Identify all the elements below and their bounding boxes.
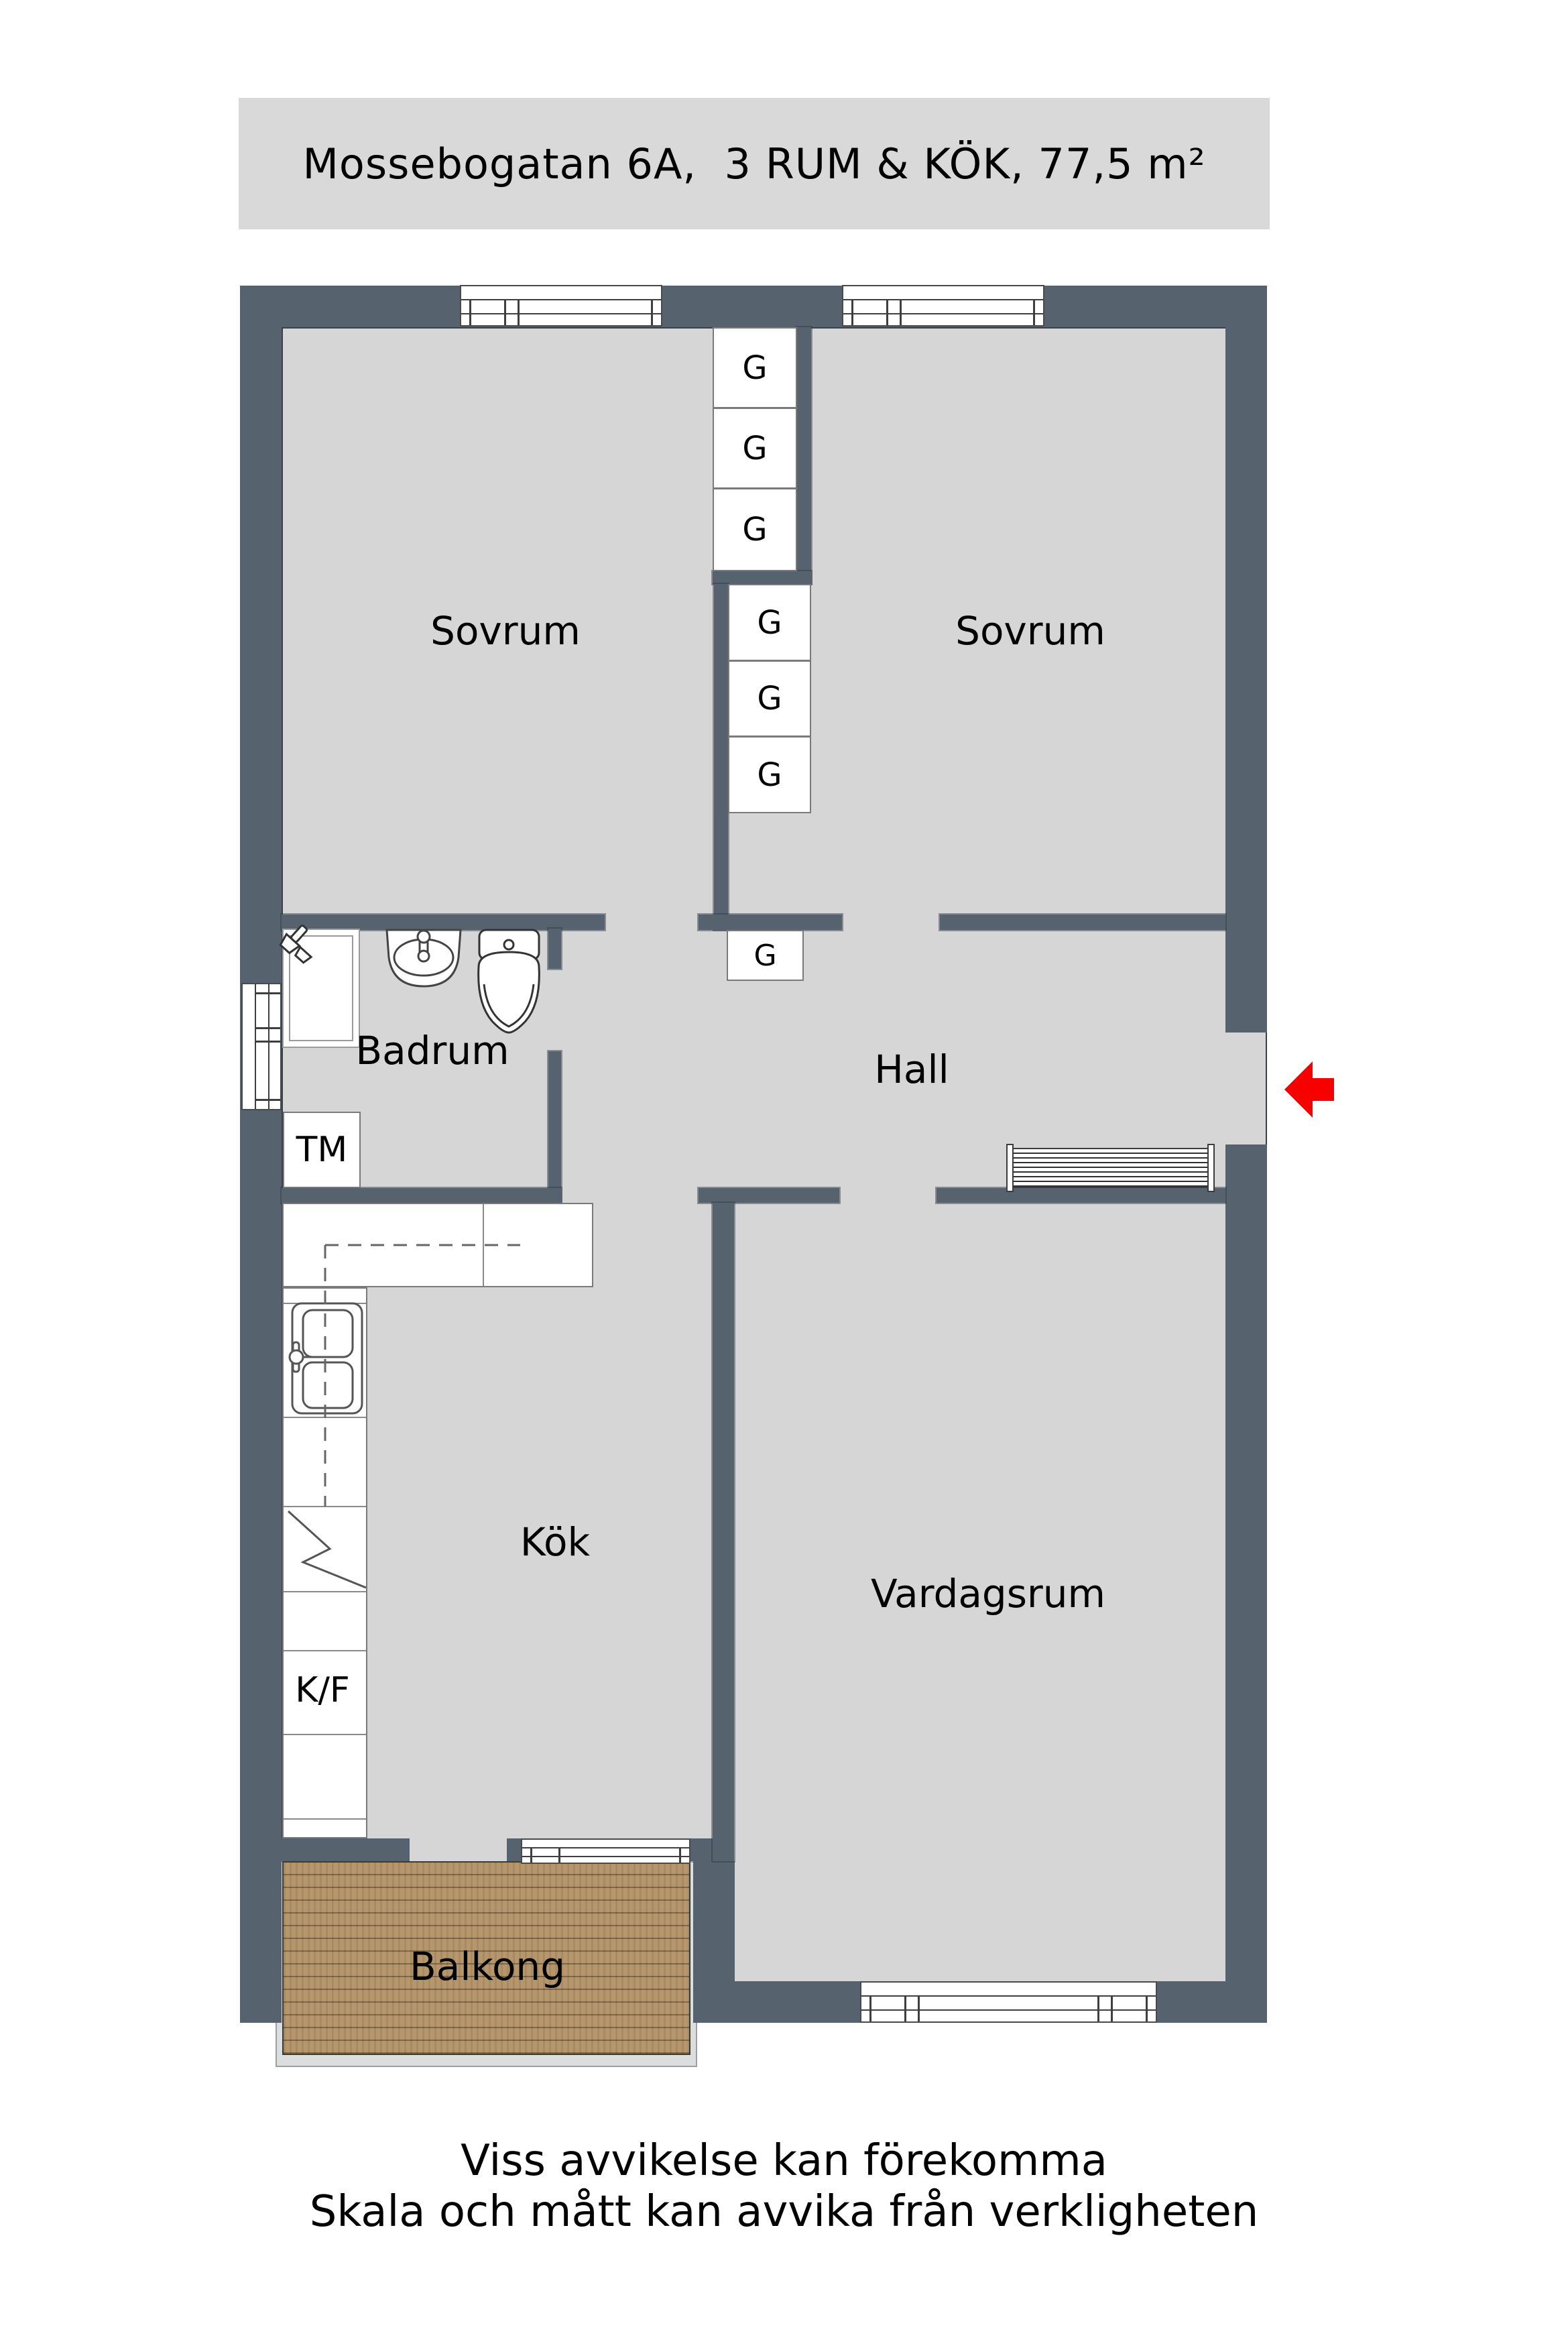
wardrobe-label: G <box>757 680 782 717</box>
wall-hall-south-right <box>937 1188 1225 1203</box>
window-tick <box>904 1996 906 2021</box>
window-tick <box>504 300 506 325</box>
wall-east-above-entrance <box>1225 286 1267 1033</box>
window-tick <box>1097 1996 1099 2021</box>
wardrobe-box: G <box>713 408 797 489</box>
wardrobe-box: G <box>728 584 811 661</box>
floorplan-page: Mossebogatan 6A, 3 RUM & KÖK, 77,5 m² <box>0 0 1568 2352</box>
wardrobe-label: G <box>757 756 782 794</box>
wall-bathroom-south <box>282 1188 561 1203</box>
disclaimer: Viss avvikelse kan förekomma Skala och m… <box>0 2136 1568 2237</box>
wall-bedroom1-south <box>282 915 605 930</box>
window-tick <box>918 1996 920 2021</box>
window-tick <box>679 1847 681 1863</box>
window-tick <box>256 1041 280 1043</box>
wall-west <box>240 286 282 2023</box>
wall-hall-south-left <box>699 1188 839 1203</box>
wardrobe-box: G <box>713 488 797 571</box>
window-line <box>461 299 661 300</box>
entry-arrow-icon <box>1284 1061 1334 1118</box>
room-label-vardagsrum: Vardagsrum <box>871 1571 1105 1616</box>
wall-closet-column-joint <box>713 571 811 584</box>
window-tick <box>651 300 653 325</box>
window-tick <box>469 300 471 325</box>
counter-divider <box>284 1650 366 1651</box>
room-label-sovrum-right: Sovrum <box>955 608 1105 654</box>
window-bathroom-west <box>241 983 282 1110</box>
room-label-badrum: Badrum <box>355 1028 509 1073</box>
wall-east-below-entrance <box>1225 1144 1267 2023</box>
window-line <box>255 984 256 1109</box>
kitchen-counter-top <box>282 1203 593 1287</box>
wardrobe-label: G <box>742 511 767 548</box>
radiator <box>1012 1148 1209 1188</box>
disclaimer-line-2: Skala och mått kan avvika från verklighe… <box>0 2187 1568 2238</box>
wall-bathroom-east-upper <box>548 929 561 969</box>
window-tick <box>530 1847 532 1863</box>
wall-corner-kitchen-livingroom <box>693 1861 735 1981</box>
room-label-kok: Kök <box>520 1519 590 1565</box>
wall-closet-column-left <box>714 584 728 930</box>
window-line <box>843 299 1043 300</box>
wardrobe-box: G <box>728 660 811 737</box>
wardrobe-label: G <box>742 349 767 387</box>
counter-divider <box>284 1303 366 1304</box>
fridge-freezer-label: K/F <box>295 1670 350 1710</box>
window-tick <box>1111 1996 1113 2021</box>
washing-machine-box: TM <box>283 1112 361 1188</box>
counter-divider <box>284 1417 366 1418</box>
wall-hall-north-left <box>699 915 842 930</box>
wall-kitchen-south-post <box>507 1838 521 1861</box>
wardrobe-label: G <box>742 430 767 467</box>
window-bedroom-right <box>842 285 1044 327</box>
wall-bathroom-east-lower <box>548 1051 561 1203</box>
counter-divider <box>284 1591 366 1592</box>
window-line <box>268 984 269 1109</box>
counter-divider <box>284 1818 366 1820</box>
wall-top <box>240 286 1267 327</box>
window-tick <box>518 300 520 325</box>
wall-kitchen-livingroom-divider <box>713 1203 734 1861</box>
counter-divider <box>483 1204 484 1286</box>
wardrobe-label: G <box>753 939 776 973</box>
window-balcony <box>521 1838 690 1864</box>
washing-machine-label: TM <box>296 1130 348 1170</box>
window-tick <box>558 1847 560 1863</box>
counter-divider <box>284 1734 366 1735</box>
wardrobe-label: G <box>757 604 782 642</box>
window-line <box>843 313 1043 314</box>
floor-plan: G G G G G G G TM <box>0 0 1568 2352</box>
radiator-cap <box>1006 1144 1014 1192</box>
window-tick <box>1033 300 1035 325</box>
wardrobe-box: G <box>728 736 811 813</box>
window-tick <box>886 300 888 325</box>
kitchen-counter-left <box>282 1287 367 1838</box>
disclaimer-line-1: Viss avvikelse kan förekomma <box>0 2136 1568 2187</box>
window-tick <box>256 1099 280 1101</box>
window-tick <box>1146 1996 1148 2021</box>
wall-kitchen-south-left <box>240 1838 410 1861</box>
wall-closet-column-right <box>797 327 811 584</box>
window-line <box>461 313 661 314</box>
window-tick <box>256 992 280 994</box>
radiator-cap <box>1207 1144 1215 1192</box>
room-label-balkong: Balkong <box>410 1944 565 1989</box>
window-tick <box>256 1027 280 1029</box>
window-tick <box>869 1996 871 2021</box>
window-bedroom-left <box>460 285 662 327</box>
window-line <box>522 1856 689 1857</box>
window-livingroom-south <box>860 1981 1157 2023</box>
window-line <box>522 1847 689 1848</box>
window-tick <box>851 300 853 325</box>
counter-divider <box>284 1506 366 1507</box>
wardrobe-box-hall: G <box>727 930 804 981</box>
wall-hall-north-right <box>940 915 1225 930</box>
wardrobe-box: G <box>713 327 797 408</box>
room-label-hall: Hall <box>874 1047 949 1092</box>
room-label-sovrum-left: Sovrum <box>430 608 581 654</box>
shower <box>282 929 360 1048</box>
window-tick <box>900 300 902 325</box>
